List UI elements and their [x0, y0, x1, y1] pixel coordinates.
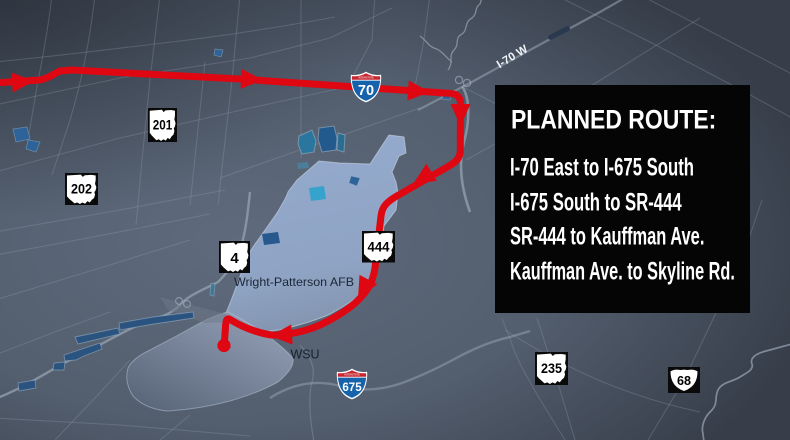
svg-text:WSU: WSU	[291, 347, 320, 361]
svg-text:202: 202	[71, 182, 92, 197]
svg-text:68: 68	[677, 374, 691, 388]
svg-text:235: 235	[541, 361, 562, 376]
svg-text:Wright-Patterson AFB: Wright-Patterson AFB	[234, 275, 354, 289]
svg-text:70: 70	[358, 83, 374, 99]
svg-text:675: 675	[342, 382, 362, 394]
svg-text:201: 201	[153, 118, 173, 133]
svg-text:INTERSTATE: INTERSTATE	[358, 76, 374, 80]
svg-text:444: 444	[368, 239, 390, 254]
svg-text:INTERSTATE: INTERSTATE	[344, 373, 360, 377]
svg-text:4: 4	[230, 250, 239, 267]
